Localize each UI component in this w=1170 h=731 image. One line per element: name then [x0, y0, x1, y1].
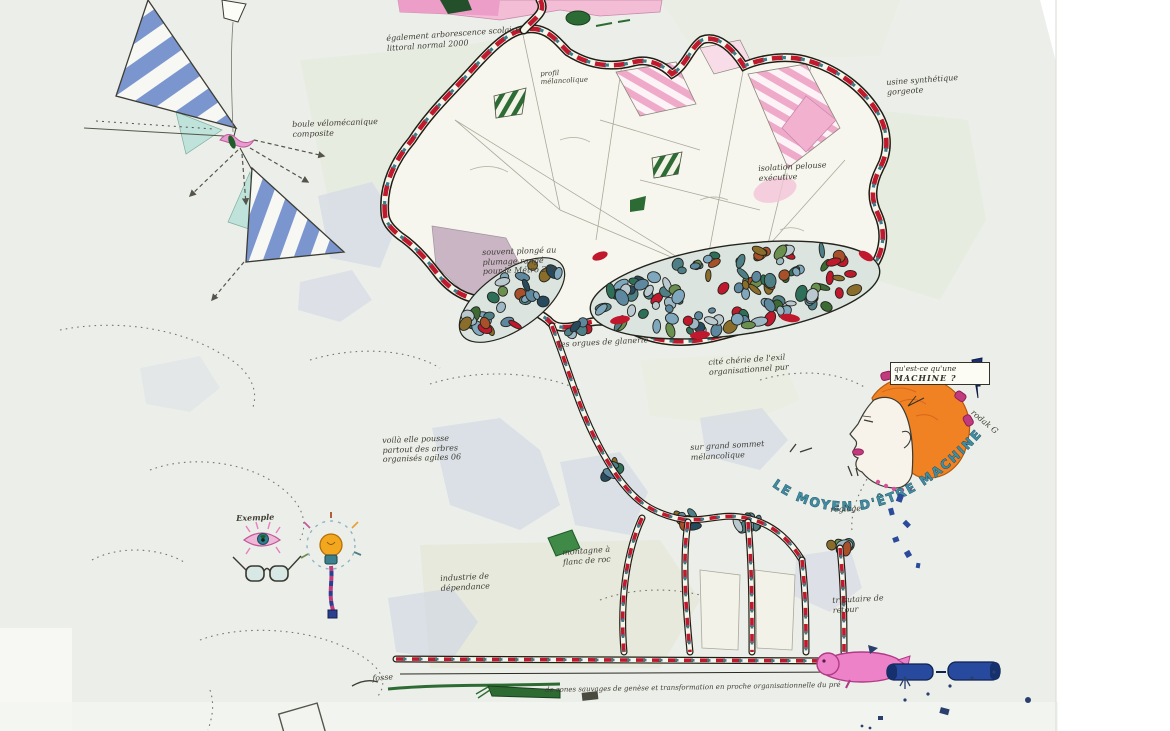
- map-annotation: boule vélomécanique composite: [292, 117, 378, 139]
- speech-bubble: qu'est-ce qu'une MACHINE ?: [890, 362, 990, 385]
- map-annotation: tributaire de retour: [832, 593, 884, 615]
- map-annotation: montagne à flanc de roc: [562, 545, 611, 567]
- pebble: [741, 321, 755, 329]
- map-annotation: sur grand sommet mélancolique: [690, 439, 765, 462]
- pebble: [653, 319, 661, 333]
- pebble: [708, 307, 716, 313]
- map-annotation: industrie de dépendance: [440, 571, 490, 593]
- artwork-canvas: LE MOYEN D'ÊTRE MACHINE ?: [0, 0, 1170, 731]
- pebble: [705, 269, 711, 281]
- map-annotation: isolation pelouse exécutive: [758, 160, 827, 183]
- map-annotation: Exemple: [236, 513, 274, 524]
- map-annotation: réglage: [830, 504, 861, 515]
- map-annotation: profil mélancolique: [540, 68, 588, 87]
- map-annotation: fosse: [372, 672, 393, 683]
- pebble: [678, 267, 687, 274]
- map-annotation: souvent plongé au plumage rangé pour le …: [482, 245, 557, 276]
- mouth: [853, 449, 864, 455]
- pebble: [845, 270, 857, 277]
- map-annotation: voilà elle pousse partout des arbres org…: [382, 433, 461, 464]
- map-artwork: LE MOYEN D'ÊTRE MACHINE ?: [0, 0, 1170, 731]
- speech-bubble-line2: MACHINE ?: [894, 373, 986, 383]
- speech-bubble-line1: qu'est-ce qu'une: [894, 364, 986, 373]
